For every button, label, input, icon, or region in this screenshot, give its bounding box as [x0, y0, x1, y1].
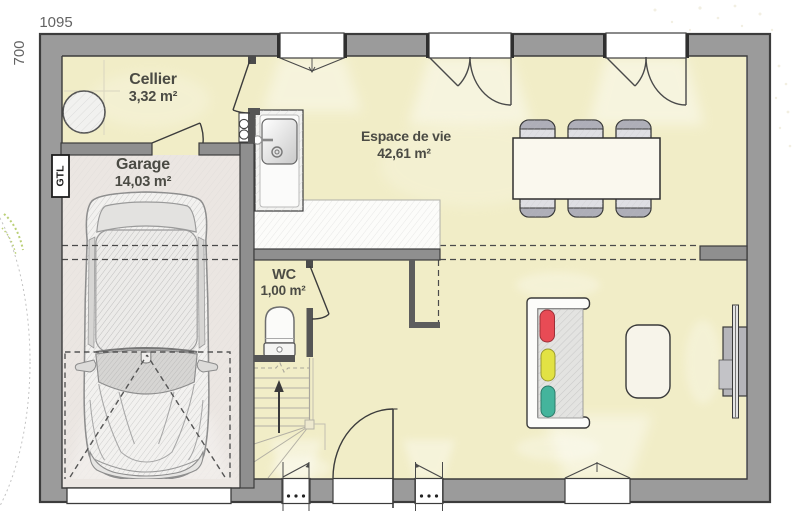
svg-text:1095: 1095 — [39, 14, 72, 31]
svg-text:Espace de vie: Espace de vie — [361, 128, 451, 144]
svg-text:3,32 m²: 3,32 m² — [129, 89, 178, 105]
svg-text:14,03 m²: 14,03 m² — [115, 174, 172, 190]
svg-text:1,00 m²: 1,00 m² — [260, 283, 306, 298]
svg-text:Cellier: Cellier — [129, 71, 177, 88]
svg-text:700: 700 — [11, 40, 28, 65]
svg-text:Garage: Garage — [116, 156, 170, 173]
svg-text:42,61 m²: 42,61 m² — [377, 146, 431, 161]
svg-text:GTL: GTL — [55, 165, 67, 187]
svg-text:WC: WC — [272, 267, 296, 283]
